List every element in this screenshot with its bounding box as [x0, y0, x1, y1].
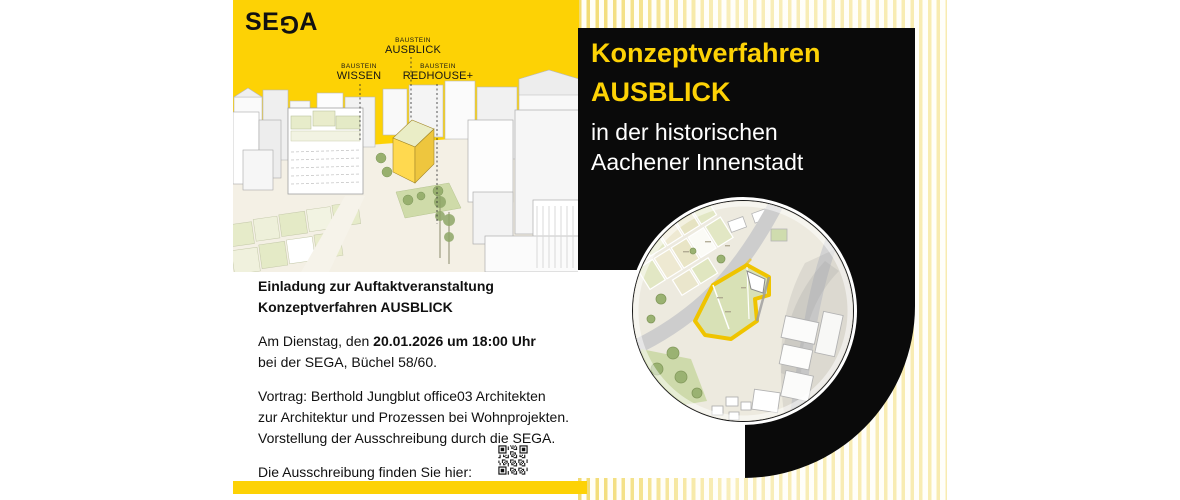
cta-text: Die Ausschreibung finden Sie hier: — [258, 464, 472, 480]
invite-heading-line1: Einladung zur Auftaktveranstaltung — [258, 278, 494, 294]
event-date-prefix: Am Dienstag, den — [258, 333, 373, 349]
title-line-2: AUSBLICK — [591, 73, 915, 112]
hero-rendering-block: SEGA BAUSTEIN AUSBLICK BAUSTEIN WISSEN B… — [233, 0, 579, 272]
event-location: bei der SEGA, Büchel 58/60. — [258, 354, 437, 370]
site-plan-circle — [632, 200, 854, 422]
sega-logo: SEGA — [245, 8, 318, 37]
poster: SEGA BAUSTEIN AUSBLICK BAUSTEIN WISSEN B… — [0, 0, 1180, 500]
label-baustein-ausblick: BAUSTEIN AUSBLICK — [358, 38, 468, 56]
talk-line1: Vortrag: Berthold Jungblut office03 Arch… — [258, 388, 546, 404]
title-line-4: Aachener Innenstadt — [591, 147, 915, 177]
invite-heading-line2: Konzeptverfahren AUSBLICK — [258, 299, 453, 315]
title-line-3: in der historischen — [591, 117, 915, 147]
site-plan-map — [633, 201, 853, 421]
sega-logo-flipped-g: G — [279, 9, 299, 38]
bottom-yellow-bar — [233, 481, 587, 494]
title-line-1: Konzeptverfahren — [591, 34, 915, 73]
event-date: 20.01.2026 um 18:00 Uhr — [373, 333, 536, 349]
talk-line2: zur Architektur und Prozessen bei Wohnpr… — [258, 409, 569, 425]
qr-code[interactable] — [496, 443, 530, 477]
label-baustein-redhouse: BAUSTEIN REDHOUSE+ — [383, 64, 493, 82]
invitation-text-block: Einladung zur Auftaktveranstaltung Konze… — [258, 276, 588, 496]
